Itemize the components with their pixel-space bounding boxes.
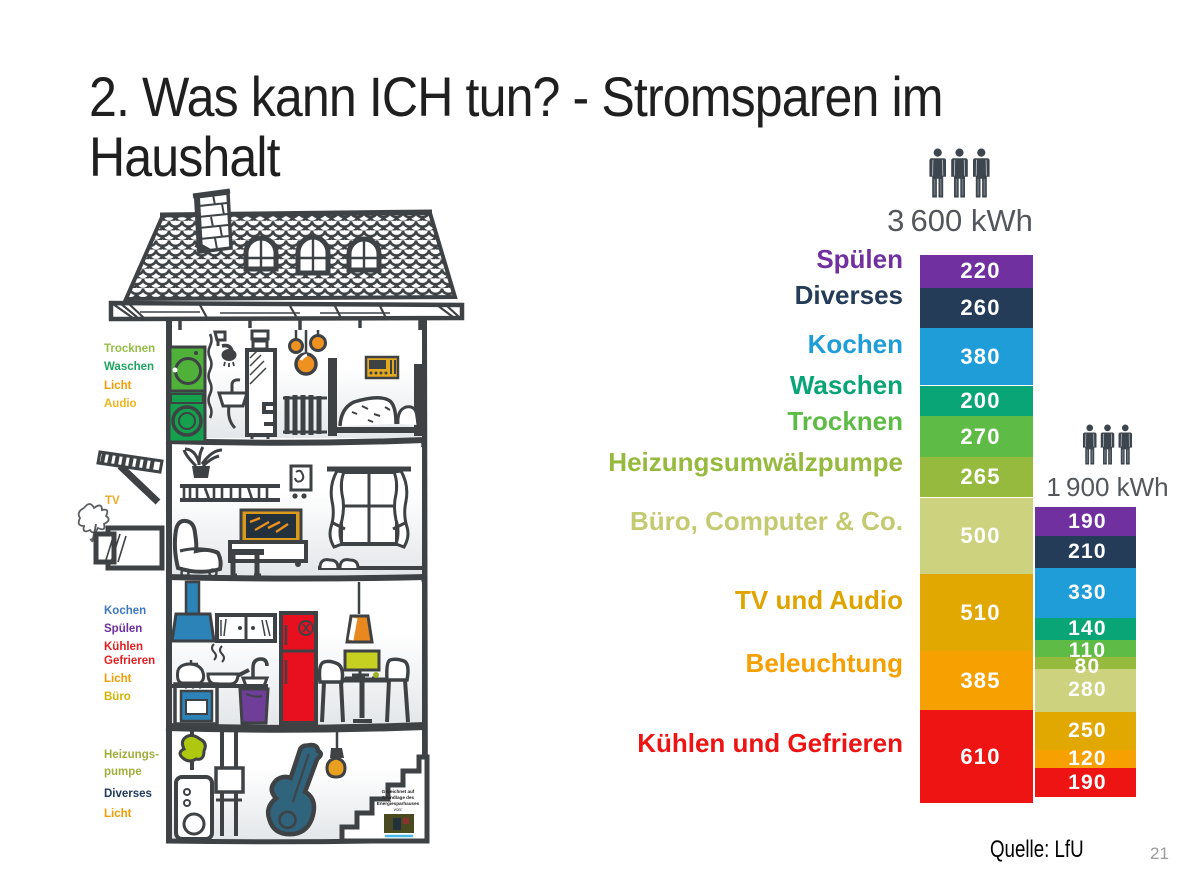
svg-text:Kochen: Kochen bbox=[104, 605, 146, 617]
svg-text:Heizungs-: Heizungs- bbox=[104, 749, 159, 761]
svg-text:Diverses: Diverses bbox=[104, 788, 152, 800]
svg-text:Spülen: Spülen bbox=[104, 623, 142, 635]
svg-text:von:: von: bbox=[394, 807, 403, 812]
svg-text:Büro: Büro bbox=[104, 691, 131, 703]
svg-text:Waschen: Waschen bbox=[104, 361, 154, 373]
svg-text:Grundlage des: Grundlage des bbox=[382, 795, 415, 800]
svg-text:Licht: Licht bbox=[104, 380, 132, 392]
svg-text:Licht: Licht bbox=[104, 808, 132, 820]
svg-text:Kühlen: Kühlen bbox=[104, 641, 143, 653]
svg-text:Licht: Licht bbox=[104, 673, 132, 685]
svg-text:Trocknen: Trocknen bbox=[104, 343, 155, 355]
svg-text:TV: TV bbox=[105, 495, 120, 507]
svg-text:pumpe: pumpe bbox=[104, 766, 142, 778]
svg-text:Gefrieren: Gefrieren bbox=[104, 655, 155, 667]
svg-text:Gezeichnet auf: Gezeichnet auf bbox=[382, 789, 415, 794]
svg-text:Energiesparhauses: Energiesparhauses bbox=[377, 801, 420, 806]
svg-text:Audio: Audio bbox=[104, 398, 137, 410]
